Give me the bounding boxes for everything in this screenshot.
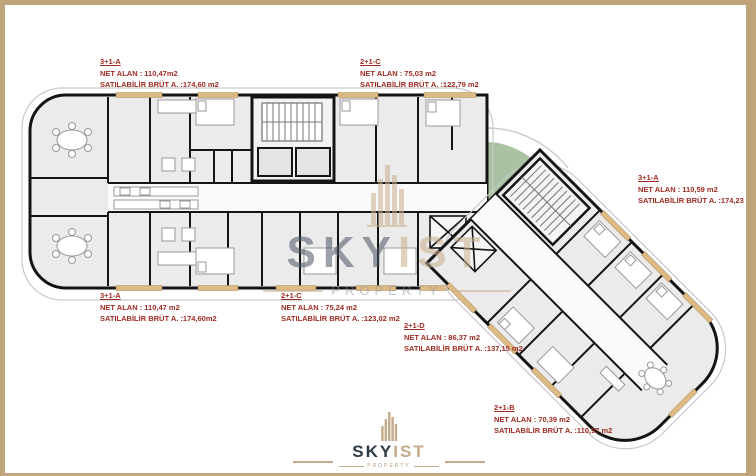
floor-plan-page: SKYIST PROPERTY 3+1-A NET ALAN : 110,47m… (0, 0, 756, 476)
unit-label-2-1-C-top: 2+1-C NET ALAN : 75,03 m2 SATILABİLİR BR… (360, 56, 479, 91)
unit-net-alan: NET ALAN : 75,24 m2 (281, 302, 400, 314)
unit-code: 3+1-A (100, 56, 219, 68)
unit-code: 2+1-C (360, 56, 479, 68)
unit-code: 3+1-A (638, 172, 756, 184)
unit-brut: SATILABİLİR BRÜT A. :122,79 m2 (360, 79, 479, 91)
footer-brand: SKYIST (339, 443, 439, 460)
unit-label-3-1-A-bottom: 3+1-A NET ALAN : 110,47 m2 SATILABİLİR B… (100, 290, 217, 325)
unit-net-alan: NET ALAN : 75,03 m2 (360, 68, 479, 80)
unit-label-3-1-A-top: 3+1-A NET ALAN : 110,47m2 SATILABİLİR BR… (100, 56, 219, 91)
unit-brut: SATILABİLİR BRÜT A. :137,15 m2 (404, 343, 523, 355)
unit-net-alan: NET ALAN : 110,47m2 (100, 68, 219, 80)
unit-code: 2+1-C (281, 290, 400, 302)
unit-net-alan: NET ALAN : 110,47 m2 (100, 302, 217, 314)
footer-flank-line-right (445, 461, 485, 463)
footer-sky: SKY (352, 442, 393, 461)
stair-core (252, 97, 334, 181)
skyist-footer-logo: SKYIST PROPERTY (339, 412, 439, 469)
footer-flank-line-left (293, 461, 333, 463)
unit-brut: SATILABİLİR BRÜT A. :174,23 m2 (638, 195, 756, 207)
unit-brut: SATILABİLİR BRÜT A. :110,97 m2 (494, 425, 612, 437)
footer-ist: IST (393, 442, 425, 461)
unit-brut: SATILABİLİR BRÜT A. :174,60 m2 (100, 79, 219, 91)
unit-net-alan: NET ALAN : 70,39 m2 (494, 414, 612, 426)
unit-code: 2+1-B (494, 402, 612, 414)
unit-label-2-1-B: 2+1-B NET ALAN : 70,39 m2 SATILABİLİR BR… (494, 402, 612, 437)
unit-code: 2+1-D (404, 320, 523, 332)
unit-label-2-1-D: 2+1-D NET ALAN : 86,37 m2 SATILABİLİR BR… (404, 320, 523, 355)
footer-line-left (339, 466, 364, 467)
footer-line-right (414, 466, 439, 467)
unit-net-alan: NET ALAN : 110,59 m2 (638, 184, 756, 196)
unit-brut: SATILABİLİR BRÜT A. :123,02 m2 (281, 313, 400, 325)
footer-subtitle-row: PROPERTY (339, 463, 439, 469)
footer-subtitle: PROPERTY (364, 463, 413, 469)
unit-net-alan: NET ALAN : 86,37 m2 (404, 332, 523, 344)
unit-label-3-1-A-right: 3+1-A NET ALAN : 110,59 m2 SATILABİLİR B… (638, 172, 756, 207)
unit-code: 3+1-A (100, 290, 217, 302)
unit-label-2-1-C-bottom: 2+1-C NET ALAN : 75,24 m2 SATILABİLİR BR… (281, 290, 400, 325)
top-wing (22, 88, 493, 300)
elevator (296, 148, 330, 176)
unit-brut: SATILABİLİR BRÜT A. :174,60m2 (100, 313, 217, 325)
elevator (258, 148, 292, 176)
building-icon (377, 412, 401, 442)
